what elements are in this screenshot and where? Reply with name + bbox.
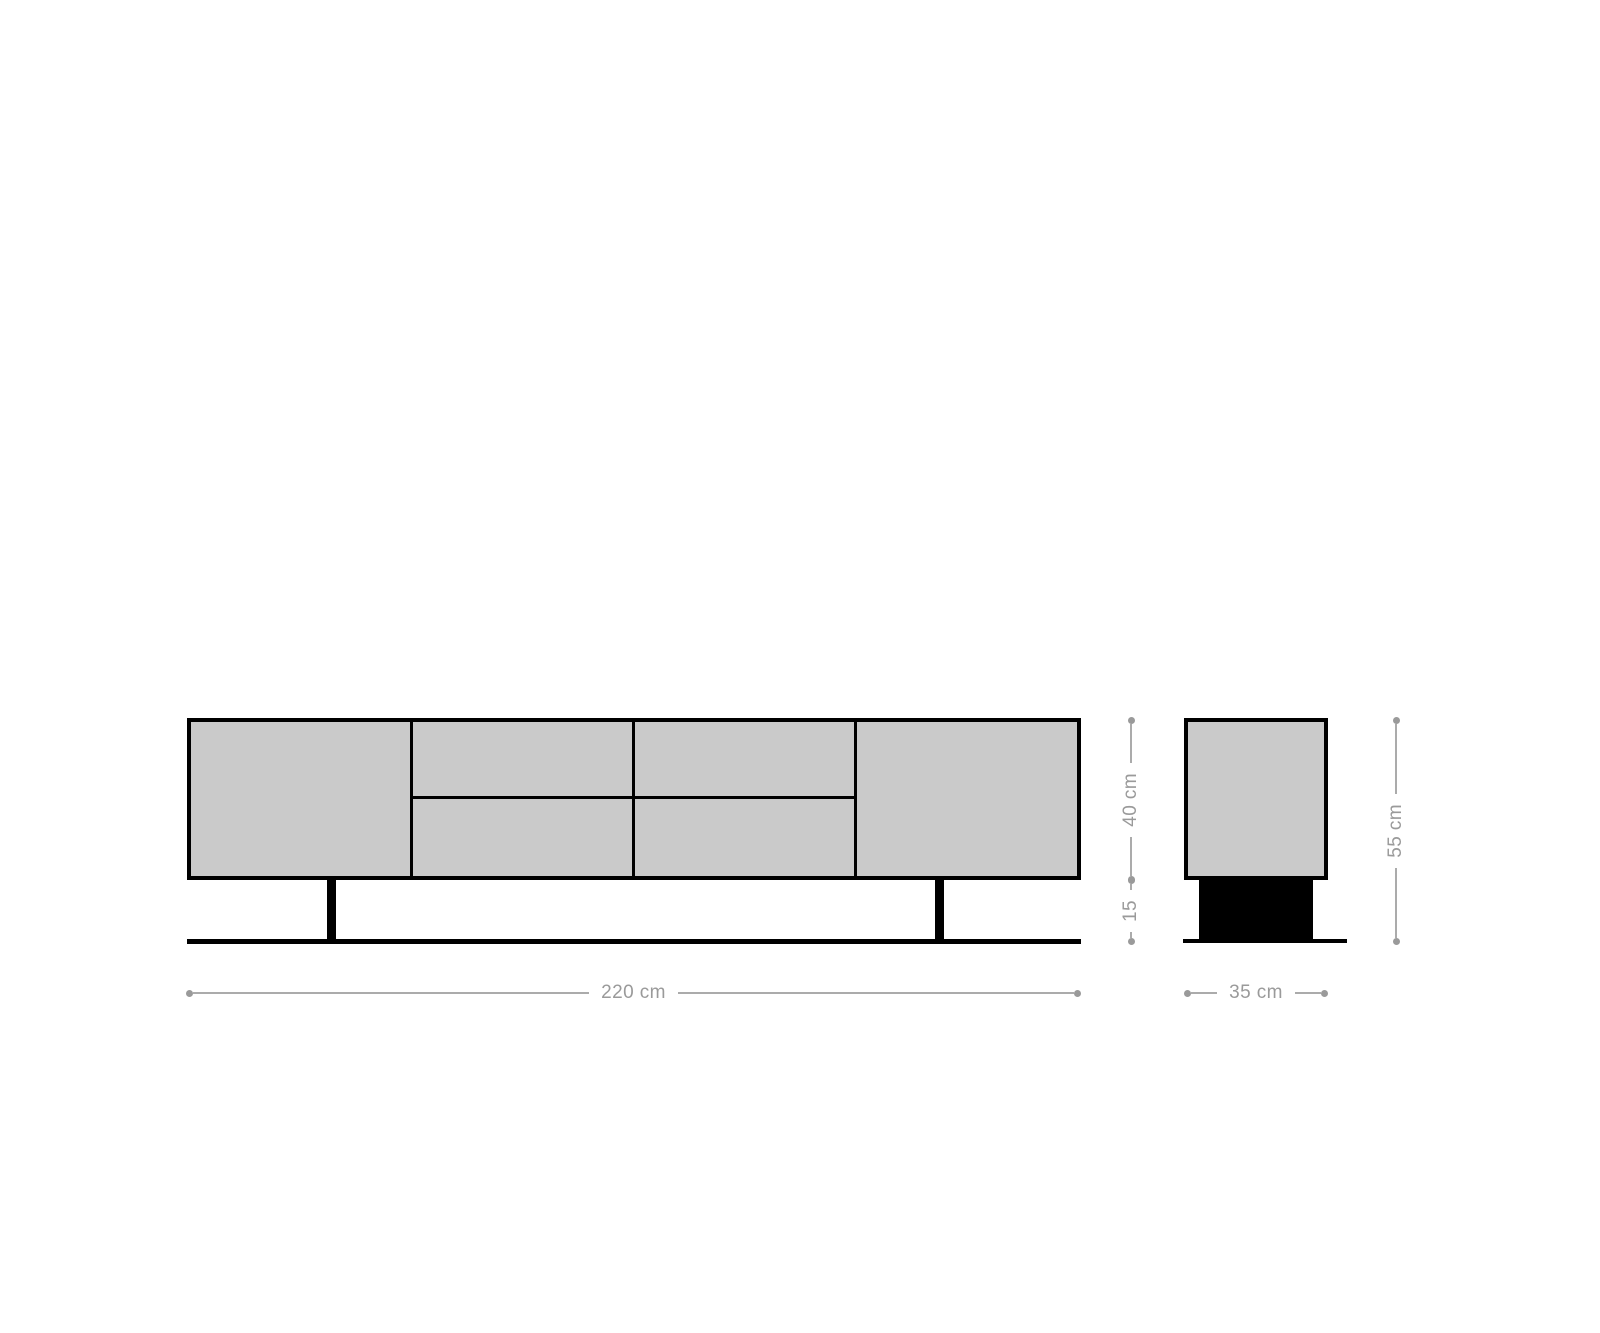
total-height-dimension: 55 cm: [1386, 717, 1406, 945]
side-ground-line: [1183, 939, 1347, 943]
dimension-line: [1295, 992, 1321, 994]
dimension-line: [1395, 724, 1397, 794]
dimension-line: [193, 992, 589, 994]
dimension-line: [1130, 837, 1132, 876]
front-left-leg: [327, 880, 336, 941]
furniture-dimension-diagram: 220 cm 35 cm 40 cm 15 55 cm: [0, 0, 1600, 1333]
width-dimension-label: 220 cm: [601, 983, 666, 1003]
depth-dimension: 35 cm: [1184, 983, 1328, 1003]
base-height-dimension: 15: [1121, 877, 1141, 945]
dimension-endpoint-dot: [1393, 938, 1400, 945]
side-view-base: [1199, 878, 1313, 941]
dimension-endpoint-dot: [186, 990, 193, 997]
dimension-line: [1191, 992, 1217, 994]
front-right-leg: [935, 880, 944, 941]
width-dimension: 220 cm: [186, 983, 1081, 1003]
side-view-cabinet: [1184, 718, 1328, 880]
dimension-line: [678, 992, 1074, 994]
dimension-endpoint-dot: [1321, 990, 1328, 997]
dimension-endpoint-dot: [1393, 717, 1400, 724]
body-height-dimension-label: 40 cm: [1121, 773, 1141, 827]
front-ground-line: [187, 939, 1081, 944]
dimension-line: [1130, 884, 1132, 890]
panel-divider-2: [632, 722, 635, 876]
depth-dimension-label: 35 cm: [1229, 983, 1283, 1003]
front-view-cabinet: [187, 718, 1081, 880]
dimension-endpoint-dot: [1184, 990, 1191, 997]
dimension-endpoint-dot: [1074, 990, 1081, 997]
dimension-line: [1395, 868, 1397, 938]
dimension-endpoint-dot: [1128, 877, 1135, 884]
drawer-divider: [410, 796, 857, 799]
dimension-line: [1130, 724, 1132, 763]
panel-divider-3: [854, 722, 857, 876]
base-height-dimension-label: 15: [1121, 900, 1141, 922]
total-height-dimension-label: 55 cm: [1386, 804, 1406, 858]
dimension-endpoint-dot: [1128, 938, 1135, 945]
body-height-dimension: 40 cm: [1121, 717, 1141, 883]
panel-divider-1: [410, 722, 413, 876]
dimension-endpoint-dot: [1128, 717, 1135, 724]
